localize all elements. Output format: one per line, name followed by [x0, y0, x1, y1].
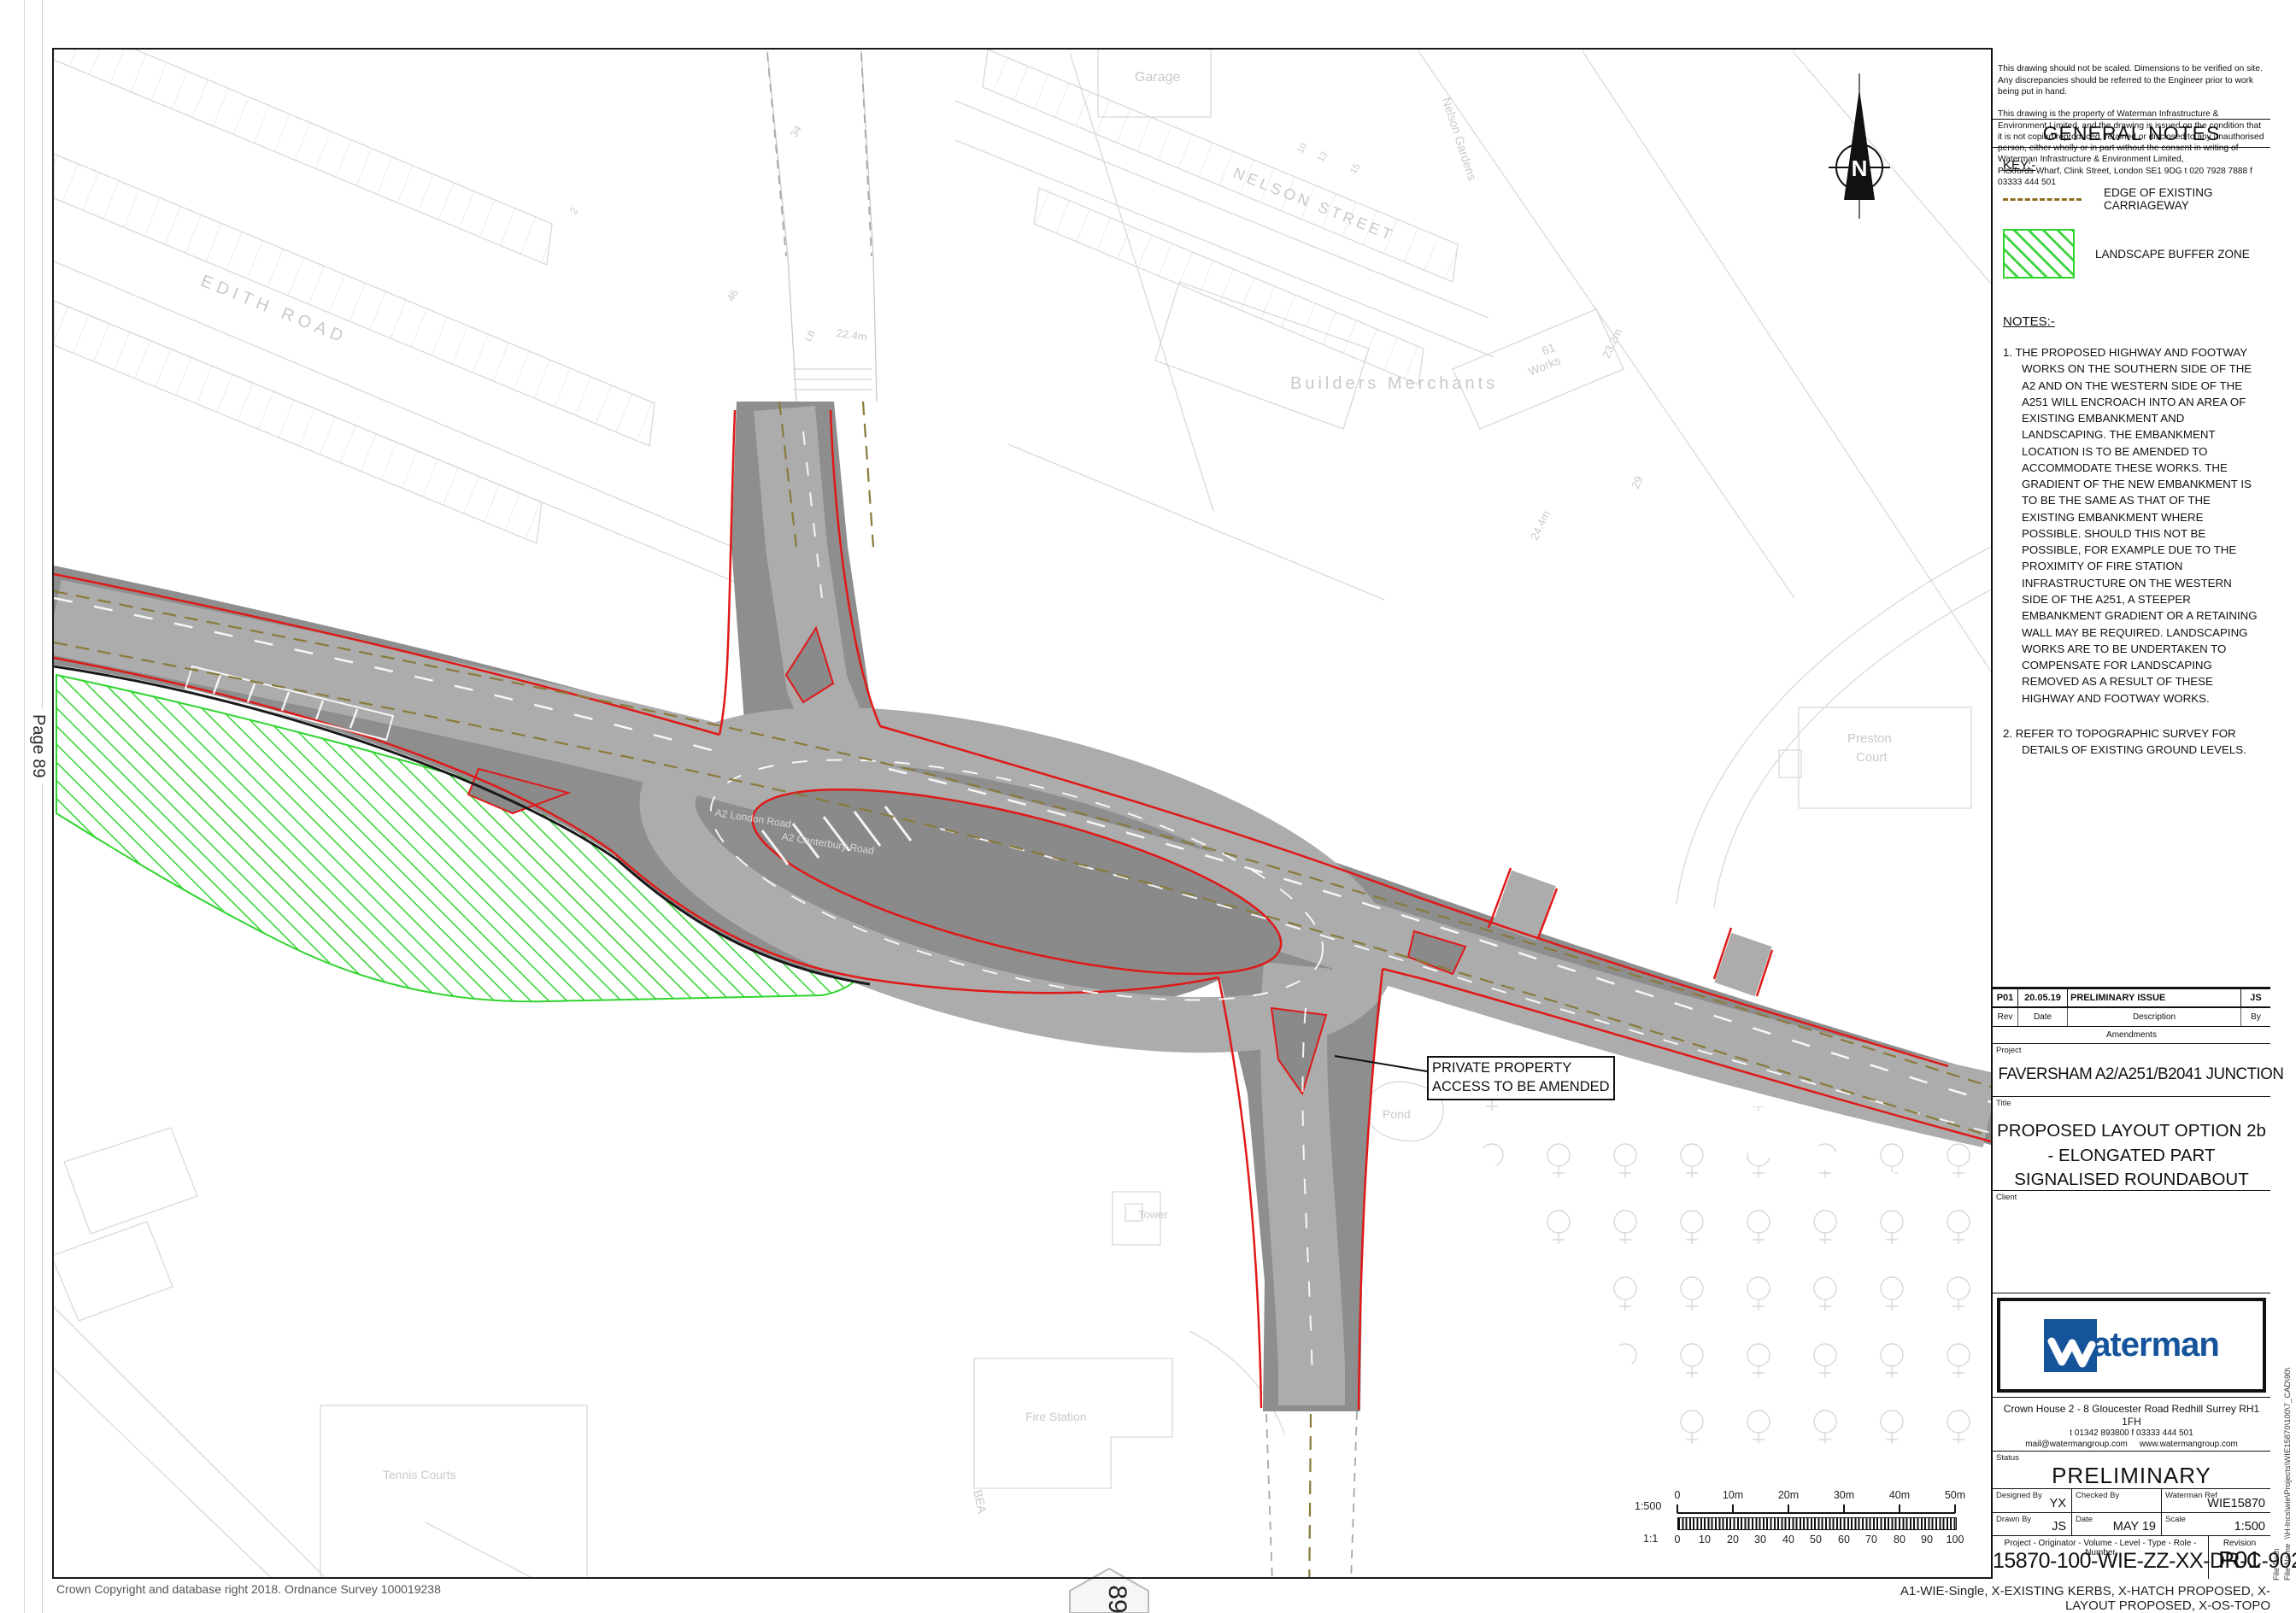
map-label: Preston: [1847, 731, 1892, 746]
scale-tick-label: 10: [1699, 1534, 1711, 1546]
field-label: Status: [1996, 1453, 2019, 1463]
notes-title: NOTES:-: [2003, 314, 2260, 329]
field-label: Drawn By: [1996, 1515, 2031, 1524]
map-label: Court: [1856, 750, 1888, 765]
scale-tick-label: 20: [1727, 1534, 1739, 1546]
key-item: LANDSCAPE BUFFER ZONE: [2003, 229, 2260, 279]
annotation-line: ACCESS TO BE AMENDED: [1432, 1078, 1610, 1097]
scale-tick-label: 80: [1894, 1534, 1906, 1546]
xref-note: A1-WIE-Single, X-EXISTING KERBS, X-HATCH…: [1863, 1584, 2270, 1613]
revision-strip: P01 20.05.19 PRELIMINARY ISSUE JS: [1993, 988, 2270, 1008]
designed-by-value: YX: [2050, 1497, 2066, 1510]
date-value: MAY 19: [2113, 1520, 2156, 1534]
scale-tick-label: 30: [1754, 1534, 1766, 1546]
fields-row: Designed By YX Checked By Waterman Ref W…: [1993, 1489, 2270, 1513]
key-item-label: EDGE OF EXISTING CARRIAGEWAY: [2104, 186, 2260, 212]
project-name: FAVERSHAM A2/A251/B2041 JUNCTION: [1999, 1065, 2265, 1084]
disclaimer: This drawing should not be scaled. Dimen…: [1993, 48, 2270, 120]
company-logo-box: aterman: [1993, 1293, 2270, 1398]
address-line: Crown House 2 - 8 Gloucester Road Redhil…: [1993, 1403, 2270, 1428]
disclaimer-text: This drawing should not be scaled. Dimen…: [1998, 64, 2263, 97]
scale-value: 1:500: [2234, 1520, 2265, 1534]
scale-ratio-top: 1:500: [1635, 1500, 1661, 1512]
scale-tick-label: 40m: [1889, 1489, 1910, 1501]
note-item: 1. THE PROPOSED HIGHWAY AND FOOTWAY WORK…: [2003, 344, 2260, 707]
field-label: Client: [1996, 1193, 2017, 1202]
sheet-edge-line: [42, 0, 43, 1613]
email: mail@watermangroup.com: [2025, 1440, 2128, 1449]
field-label: Date: [2076, 1515, 2093, 1524]
revision-rev: P01: [1993, 989, 2018, 1006]
revision-date: 20.05.19: [2018, 989, 2068, 1006]
website: www.watermangroup.com: [2140, 1440, 2238, 1449]
file-path-label: File Path: [2272, 1549, 2281, 1581]
revision-description: PRELIMINARY ISSUE: [2068, 989, 2241, 1006]
file-path-value: \\H-lncs\wie\Projects\WIE15870\100\7_CAD…: [2283, 1368, 2293, 1540]
map-label: Tower: [1138, 1208, 1168, 1221]
drawing-title: PROPOSED LAYOUT OPTION 2b - ELONGATED PA…: [1993, 1119, 2270, 1193]
north-arrow-icon: N: [1829, 73, 1890, 219]
scale-tick-label: 70: [1865, 1534, 1877, 1546]
scale-tick-label: 0: [1675, 1489, 1681, 1501]
map-label: Builders Merchants: [1290, 374, 1498, 394]
scale-tick-label: 50: [1810, 1534, 1822, 1546]
scale-tick-label: 100: [1947, 1534, 1964, 1546]
status-value: PRELIMINARY: [1993, 1463, 2270, 1489]
project-box: Project FAVERSHAM A2/A251/B2041 JUNCTION: [1993, 1044, 2270, 1097]
field-label: Title: [1996, 1099, 2011, 1108]
general-notes-heading: GENERAL NOTES: [1993, 120, 2270, 148]
scale-tick-label: 60: [1838, 1534, 1850, 1546]
col-header: Rev: [1993, 1008, 2018, 1026]
field-label: Project: [1996, 1046, 2022, 1055]
field-label: Checked By: [2076, 1491, 2119, 1500]
key-item: EDGE OF EXISTING CARRIAGEWAY: [2003, 186, 2260, 212]
map-label: Fire Station: [1025, 1410, 1087, 1423]
note-item: 2. REFER TO TOPOGRAPHIC SURVEY FOR DETAI…: [2003, 725, 2260, 759]
scale-tick-label: 30m: [1834, 1489, 1854, 1501]
scale-tick-label: 20m: [1778, 1489, 1799, 1501]
private-property-annotation: PRIVATE PROPERTY ACCESS TO BE AMENDED: [1427, 1056, 1615, 1100]
waterman-logo-wordmark: aterman: [2092, 1326, 2219, 1364]
sheet-edge-line: [24, 0, 25, 1613]
field-label: Scale: [2165, 1515, 2186, 1524]
scale-tick-label: 0: [1675, 1534, 1681, 1546]
waterman-logo-icon: [2044, 1319, 2097, 1372]
scale-tick-label: 10m: [1723, 1489, 1743, 1501]
revision-table-headers: Rev Date Description By: [1993, 1008, 2270, 1027]
revision-by: JS: [2241, 989, 2270, 1006]
map-canvas: N 89: [0, 0, 2296, 1613]
field-label: Designed By: [1996, 1491, 2042, 1500]
green-hatch-symbol: [2003, 229, 2075, 279]
scale-tick-label: 90: [1921, 1534, 1933, 1546]
map-label: Garage: [1135, 70, 1180, 85]
fields-row: Drawn By JS Date MAY 19 Scale 1:500: [1993, 1513, 2270, 1536]
scale-ratio-bottom: 1:1: [1643, 1533, 1658, 1545]
page-side-label: Page 89: [28, 709, 48, 783]
client-box: Client: [1993, 1191, 2270, 1293]
col-header: Description: [2068, 1008, 2241, 1026]
waterman-ref-value: WIE15870: [2207, 1497, 2265, 1510]
key-and-notes: KEY:- EDGE OF EXISTING CARRIAGEWAY LANDS…: [1993, 148, 2270, 988]
phone-line: t 01342 893800 f 03333 444 501: [1993, 1428, 2270, 1440]
title-box: Title PROPOSED LAYOUT OPTION 2b - ELONGA…: [1993, 1097, 2270, 1191]
scale-tick-label: 50m: [1945, 1489, 1965, 1501]
page-tab[interactable]: 89: [1070, 1569, 1148, 1613]
col-header: By: [2241, 1008, 2270, 1026]
status-box: Status PRELIMINARY: [1993, 1451, 2270, 1489]
revision-value: P01: [2209, 1546, 2270, 1574]
file-path-note: File Path File Name \\H-lncs\wie\Project…: [2272, 1368, 2294, 1581]
dashed-line-symbol: [2003, 198, 2082, 201]
amendments-label: Amendments: [1993, 1027, 2270, 1044]
file-name-label: File Name: [2283, 1544, 2293, 1581]
scale-tick-label: 40: [1782, 1534, 1794, 1546]
scale-bar-comb: [1677, 1517, 1957, 1530]
copyright-note: Crown Copyright and database right 2018.…: [56, 1582, 441, 1596]
key-title: KEY:-: [2003, 158, 2260, 173]
company-address: Crown House 2 - 8 Gloucester Road Redhil…: [1993, 1398, 2270, 1451]
annotation-line: PRIVATE PROPERTY: [1432, 1059, 1610, 1078]
map-label: Pond: [1383, 1107, 1411, 1121]
key-item-label: LANDSCAPE BUFFER ZONE: [2095, 248, 2250, 261]
scale-bar-line: [1677, 1512, 1955, 1514]
drawing-number: 15870-100-WIE-ZZ-XX-DR-C-90201: [1993, 1549, 2208, 1574]
title-block: This drawing should not be scaled. Dimen…: [1991, 48, 2270, 1579]
drawn-by-value: JS: [2052, 1520, 2066, 1534]
drawing-number-row: Project - Originator - Volume - Level - …: [1993, 1536, 2270, 1579]
col-header: Date: [2018, 1008, 2068, 1026]
page-tab-number: 89: [1103, 1585, 1131, 1613]
scale-bar: 1:500 0 10m 20m 30m 40m 50m 1:1 0 10 20 …: [1628, 1488, 1980, 1558]
map-label: Tennis Courts: [383, 1468, 456, 1481]
north-arrow-label: N: [1852, 155, 1868, 181]
